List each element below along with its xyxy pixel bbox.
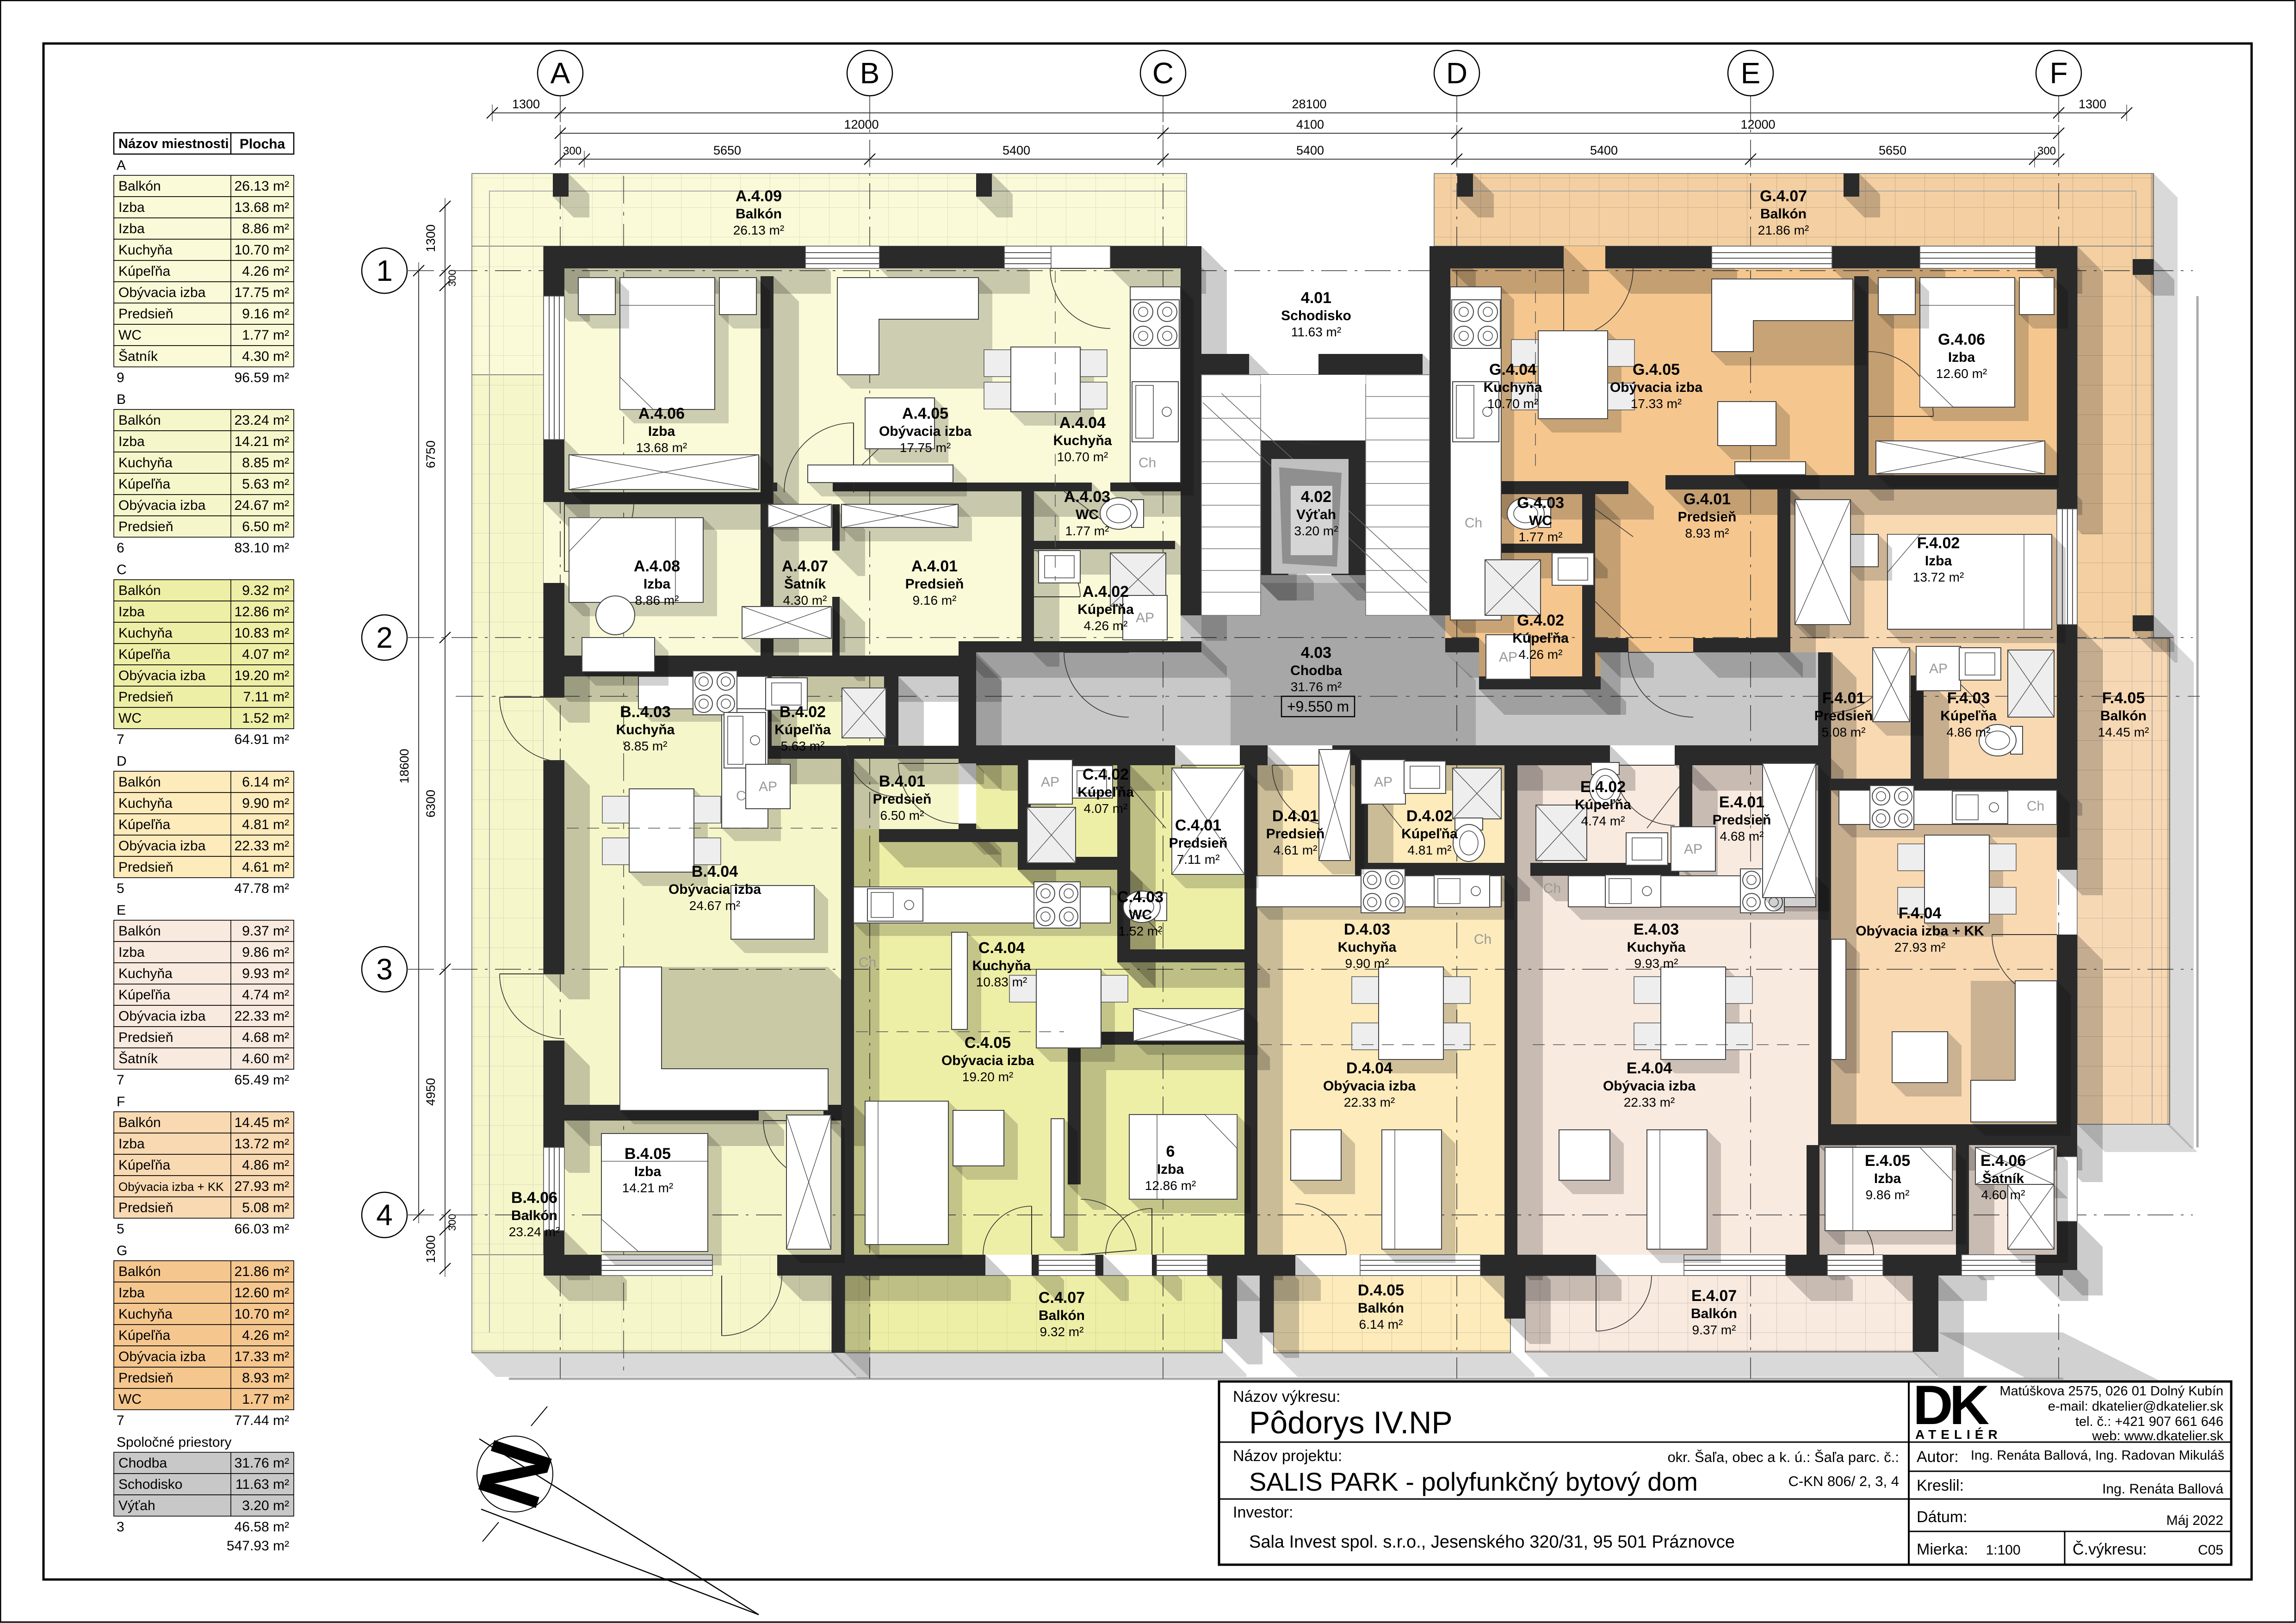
svg-text:3: 3: [376, 953, 393, 986]
svg-text:4.74 m²: 4.74 m²: [1581, 814, 1625, 828]
svg-text:Obývacia izba + KK: Obývacia izba + KK: [118, 1180, 224, 1194]
svg-text:A: A: [117, 158, 126, 173]
svg-text:300: 300: [563, 145, 582, 157]
svg-text:E: E: [1741, 56, 1761, 90]
svg-text:AP: AP: [1374, 774, 1392, 790]
svg-text:Obývacia izba: Obývacia izba: [118, 498, 206, 513]
svg-text:Šatník: Šatník: [118, 348, 158, 364]
svg-text:4.86 m²: 4.86 m²: [242, 1158, 289, 1173]
svg-text:B..4.03: B..4.03: [620, 703, 671, 721]
svg-text:Izba: Izba: [118, 1285, 145, 1301]
svg-text:A.4.01: A.4.01: [911, 558, 958, 575]
svg-text:B.4.04: B.4.04: [692, 863, 738, 880]
svg-text:Obývacia izba: Obývacia izba: [1323, 1078, 1416, 1094]
svg-text:547.93 m²: 547.93 m²: [227, 1538, 289, 1554]
svg-text:AP: AP: [1136, 610, 1154, 626]
svg-text:4.74 m²: 4.74 m²: [242, 987, 289, 1003]
svg-text:4.81 m²: 4.81 m²: [1408, 843, 1452, 857]
svg-text:10.70 m²: 10.70 m²: [235, 1307, 289, 1322]
svg-text:9.86 m²: 9.86 m²: [1866, 1188, 1910, 1202]
svg-text:1.77 m²: 1.77 m²: [242, 1392, 289, 1407]
svg-text:8.85 m²: 8.85 m²: [624, 739, 668, 753]
svg-text:Balkón: Balkón: [1039, 1308, 1085, 1323]
svg-text:tel. č.: +421 907 661 646: tel. č.: +421 907 661 646: [2075, 1414, 2223, 1429]
svg-text:9.32 m²: 9.32 m²: [1040, 1325, 1084, 1339]
svg-text:DK: DK: [1913, 1374, 1989, 1436]
svg-text:A.4.04: A.4.04: [1059, 414, 1106, 432]
svg-text:6.14 m²: 6.14 m²: [242, 774, 289, 790]
svg-text:E.4.01: E.4.01: [1719, 793, 1764, 811]
svg-text:4950: 4950: [424, 1078, 438, 1106]
svg-text:Kúpeľňa: Kúpeľňa: [118, 477, 170, 492]
svg-text:12.60 m²: 12.60 m²: [235, 1285, 289, 1301]
svg-text:14.21 m²: 14.21 m²: [235, 434, 289, 449]
svg-text:66.03 m²: 66.03 m²: [235, 1221, 289, 1237]
svg-text:14.45 m²: 14.45 m²: [235, 1115, 289, 1130]
svg-text:13.72 m²: 13.72 m²: [235, 1136, 289, 1152]
svg-text:Kúpeľňa: Kúpeľňa: [1077, 602, 1134, 617]
svg-text:Ch: Ch: [1139, 455, 1156, 471]
svg-text:4.68 m²: 4.68 m²: [1720, 829, 1764, 843]
svg-text:19.20 m²: 19.20 m²: [962, 1070, 1014, 1084]
svg-text:Balkón: Balkón: [118, 413, 161, 428]
svg-text:19.20 m²: 19.20 m²: [235, 668, 289, 683]
svg-text:F.4.05: F.4.05: [2102, 689, 2145, 707]
svg-text:Kúpeľňa: Kúpeľňa: [1401, 826, 1458, 842]
svg-text:1300: 1300: [512, 97, 540, 111]
svg-text:Ing. Renáta Ballová: Ing. Renáta Ballová: [2102, 1481, 2223, 1497]
svg-text:Šatník: Šatník: [118, 1051, 158, 1066]
svg-text:Kúpeľňa: Kúpeľňa: [1512, 631, 1569, 646]
svg-text:4.86 m²: 4.86 m²: [1947, 725, 1991, 739]
svg-text:F: F: [2049, 56, 2067, 90]
svg-text:Predsieň: Predsieň: [905, 576, 964, 592]
svg-text:300: 300: [2037, 145, 2056, 157]
svg-text:E.4.05: E.4.05: [1865, 1152, 1910, 1170]
svg-text:D.4.05: D.4.05: [1358, 1282, 1404, 1299]
svg-text:Výťah: Výťah: [1296, 507, 1336, 522]
svg-text:9.16 m²: 9.16 m²: [242, 306, 289, 322]
svg-text:SALIS PARK - polyfunkčný bytov: SALIS PARK - polyfunkčný bytový dom: [1249, 1467, 1698, 1496]
svg-text:Kuchyňa: Kuchyňa: [616, 722, 675, 737]
svg-text:13.68 m²: 13.68 m²: [235, 200, 289, 215]
svg-text:Kúpeľňa: Kúpeľňa: [1077, 785, 1134, 800]
svg-text:21.86 m²: 21.86 m²: [1758, 223, 1809, 237]
svg-text:Predsieň: Predsieň: [118, 860, 173, 875]
svg-text:F: F: [117, 1094, 125, 1109]
svg-text:8.86 m²: 8.86 m²: [635, 593, 679, 607]
svg-text:Izba: Izba: [118, 200, 145, 215]
svg-text:Kuchyňa: Kuchyňa: [972, 958, 1031, 973]
svg-text:Obývacia izba + KK: Obývacia izba + KK: [1856, 923, 1984, 939]
svg-text:Predsieň: Predsieň: [1713, 812, 1771, 828]
svg-text:Schodisko: Schodisko: [1281, 308, 1351, 323]
svg-text:5.08 m²: 5.08 m²: [242, 1200, 289, 1215]
svg-text:4.03: 4.03: [1301, 644, 1331, 662]
svg-text:AP: AP: [1929, 661, 1948, 676]
svg-text:21.86 m²: 21.86 m²: [235, 1264, 289, 1279]
svg-text:12.86 m²: 12.86 m²: [235, 604, 289, 619]
svg-text:Obývacia izba: Obývacia izba: [1610, 380, 1702, 395]
svg-text:B: B: [117, 392, 126, 407]
svg-text:23.24 m²: 23.24 m²: [235, 413, 289, 428]
svg-text:3.20 m²: 3.20 m²: [1294, 524, 1338, 538]
svg-text:G.4.01: G.4.01: [1683, 490, 1731, 508]
svg-text:Ch: Ch: [1543, 881, 1561, 896]
svg-text:Kuchyňa: Kuchyňa: [1053, 433, 1112, 448]
svg-text:G: G: [117, 1243, 127, 1258]
svg-text:Balkón: Balkón: [1358, 1301, 1404, 1316]
svg-text:Izba: Izba: [118, 434, 145, 449]
svg-text:Balkón: Balkón: [118, 774, 161, 790]
svg-text:65.49 m²: 65.49 m²: [235, 1072, 289, 1088]
svg-text:7: 7: [117, 1072, 124, 1088]
svg-text:ATELIÉR: ATELIÉR: [1915, 1427, 2002, 1442]
svg-text:Kuchyňa: Kuchyňa: [118, 966, 173, 981]
svg-text:C.4.04: C.4.04: [978, 939, 1025, 957]
svg-text:Plocha: Plocha: [240, 136, 285, 152]
svg-text:1.77 m²: 1.77 m²: [1519, 530, 1563, 544]
svg-text:4.68 m²: 4.68 m²: [242, 1030, 289, 1045]
svg-text:Máj 2022: Máj 2022: [2166, 1513, 2223, 1528]
svg-text:D.4.01: D.4.01: [1272, 807, 1318, 825]
svg-text:5400: 5400: [1296, 143, 1324, 157]
svg-text:1300: 1300: [424, 224, 438, 252]
svg-text:Chodba: Chodba: [1290, 663, 1342, 678]
svg-text:3: 3: [117, 1519, 124, 1535]
svg-text:Kúpeľňa: Kúpeľňa: [774, 722, 831, 737]
svg-text:9.37 m²: 9.37 m²: [1692, 1323, 1736, 1337]
svg-text:web: www.dkatelier.sk: web: www.dkatelier.sk: [2092, 1429, 2223, 1443]
svg-text:Ch: Ch: [2027, 799, 2044, 814]
svg-text:B.4.06: B.4.06: [511, 1189, 557, 1207]
svg-text:B.4.02: B.4.02: [780, 703, 826, 721]
svg-text:Ing. Renáta Ballová, Ing. Rado: Ing. Renáta Ballová, Ing. Radovan Mikulá…: [1971, 1448, 2224, 1463]
svg-text:1300: 1300: [424, 1235, 438, 1263]
svg-text:Dátum:: Dátum:: [1917, 1508, 1968, 1526]
svg-text:Kuchyňa: Kuchyňa: [1338, 940, 1397, 955]
svg-text:9.90 m²: 9.90 m²: [1345, 956, 1389, 971]
svg-text:Kreslil:: Kreslil:: [1917, 1477, 1964, 1494]
svg-text:Balkón: Balkón: [1691, 1306, 1737, 1321]
svg-text:C.4.07: C.4.07: [1039, 1289, 1085, 1307]
svg-text:F.4.02: F.4.02: [1917, 534, 1960, 552]
svg-text:Šatník: Šatník: [1982, 1171, 2024, 1186]
svg-text:17.33 m²: 17.33 m²: [1631, 396, 1682, 411]
svg-text:Č.výkresu:: Č.výkresu:: [2073, 1541, 2147, 1558]
svg-text:Kuchyňa: Kuchyňa: [118, 626, 173, 641]
svg-text:WC: WC: [1129, 907, 1152, 923]
svg-text:1.52 m²: 1.52 m²: [242, 711, 289, 726]
svg-text:5400: 5400: [1003, 143, 1030, 157]
svg-text:WC: WC: [1529, 513, 1552, 528]
svg-text:A.4.07: A.4.07: [782, 558, 828, 575]
svg-text:Kuchyňa: Kuchyňa: [118, 242, 173, 258]
svg-text:31.76 m²: 31.76 m²: [235, 1456, 289, 1471]
svg-text:E.4.04: E.4.04: [1627, 1059, 1672, 1077]
svg-text:D.4.02: D.4.02: [1406, 807, 1453, 825]
svg-text:A.4.09: A.4.09: [736, 187, 782, 205]
svg-text:G.4.06: G.4.06: [1938, 331, 1985, 348]
svg-text:24.67 m²: 24.67 m²: [689, 898, 741, 913]
svg-text:4.26 m²: 4.26 m²: [242, 264, 289, 279]
svg-text:A.4.08: A.4.08: [634, 558, 680, 575]
svg-text:C.4.01: C.4.01: [1175, 817, 1221, 834]
svg-text:4.30 m²: 4.30 m²: [242, 349, 289, 364]
svg-text:F.4.04: F.4.04: [1899, 904, 1942, 922]
svg-text:13.72 m²: 13.72 m²: [1913, 570, 1964, 584]
svg-text:Balkón: Balkón: [736, 206, 782, 222]
svg-text:A.4.05: A.4.05: [902, 405, 948, 422]
svg-text:7: 7: [117, 732, 124, 747]
svg-text:300: 300: [446, 270, 458, 287]
svg-text:Izba: Izba: [118, 1136, 145, 1152]
svg-text:8.93 m²: 8.93 m²: [1685, 526, 1729, 540]
svg-text:Kúpeľňa: Kúpeľňa: [118, 1328, 170, 1343]
svg-text:1.77 m²: 1.77 m²: [242, 328, 289, 343]
svg-text:9.32 m²: 9.32 m²: [242, 583, 289, 598]
svg-text:9.16 m²: 9.16 m²: [913, 593, 957, 607]
svg-text:1: 1: [376, 254, 393, 287]
svg-text:Názov projektu:: Názov projektu:: [1233, 1447, 1342, 1465]
svg-text:10.70 m²: 10.70 m²: [235, 242, 289, 258]
svg-text:9.93 m²: 9.93 m²: [1634, 956, 1678, 971]
svg-text:E.4.03: E.4.03: [1634, 921, 1679, 938]
svg-text:4.61 m²: 4.61 m²: [242, 860, 289, 875]
svg-text:2: 2: [376, 621, 393, 654]
svg-text:10.70 m²: 10.70 m²: [1057, 450, 1108, 464]
svg-text:17.75 m²: 17.75 m²: [235, 285, 289, 300]
svg-text:4.26 m²: 4.26 m²: [1519, 647, 1563, 662]
svg-text:Pôdorys IV.NP: Pôdorys IV.NP: [1249, 1405, 1453, 1440]
svg-text:10.83 m²: 10.83 m²: [976, 975, 1027, 989]
svg-text:E: E: [117, 903, 126, 918]
svg-text:Obývacia izba: Obývacia izba: [879, 424, 972, 439]
svg-text:22.33 m²: 22.33 m²: [235, 1009, 289, 1024]
svg-text:Obývacia izba: Obývacia izba: [941, 1053, 1034, 1068]
svg-text:64.91 m²: 64.91 m²: [235, 732, 289, 747]
svg-text:14.45 m²: 14.45 m²: [2098, 725, 2149, 739]
svg-text:47.78 m²: 47.78 m²: [235, 881, 289, 896]
svg-text:11.63 m²: 11.63 m²: [1291, 325, 1341, 339]
svg-text:6.50 m²: 6.50 m²: [880, 808, 924, 823]
svg-text:17.75 m²: 17.75 m²: [900, 440, 951, 455]
svg-text:5650: 5650: [1879, 143, 1906, 157]
svg-text:23.24 m²: 23.24 m²: [509, 1225, 560, 1239]
svg-text:AP: AP: [1041, 774, 1059, 790]
svg-text:A: A: [551, 56, 570, 90]
svg-text:Schodisko: Schodisko: [118, 1477, 182, 1492]
svg-text:Izba: Izba: [648, 424, 675, 439]
svg-text:Chodba: Chodba: [118, 1456, 167, 1471]
svg-text:12.86 m²: 12.86 m²: [1145, 1178, 1196, 1193]
svg-text:4.01: 4.01: [1301, 289, 1331, 307]
svg-text:Balkón: Balkón: [118, 179, 161, 194]
svg-text:Izba: Izba: [118, 604, 145, 619]
svg-text:A.4.06: A.4.06: [638, 405, 685, 422]
svg-text:4100: 4100: [1296, 118, 1324, 131]
svg-text:AP: AP: [1684, 842, 1702, 857]
svg-text:Kuchyňa: Kuchyňa: [118, 1307, 173, 1322]
svg-text:Názov výkresu:: Názov výkresu:: [1233, 1388, 1340, 1406]
svg-text:4.07 m²: 4.07 m²: [1084, 801, 1128, 816]
svg-text:4: 4: [376, 1198, 393, 1232]
svg-text:Izba: Izba: [118, 221, 145, 236]
svg-text:9.37 m²: 9.37 m²: [242, 923, 289, 939]
svg-text:4.26 m²: 4.26 m²: [242, 1328, 289, 1343]
svg-text:Kúpeľňa: Kúpeľňa: [118, 1158, 170, 1173]
svg-text:C.4.03: C.4.03: [1117, 888, 1163, 906]
svg-text:5: 5: [117, 1221, 124, 1237]
svg-text:Balkón: Balkón: [511, 1208, 557, 1223]
svg-text:Kuchyňa: Kuchyňa: [118, 455, 173, 471]
svg-text:Balkón: Balkón: [2100, 708, 2147, 724]
svg-text:Kúpeľňa: Kúpeľňa: [118, 647, 170, 662]
svg-text:4.61 m²: 4.61 m²: [1274, 843, 1318, 857]
svg-text:22.33 m²: 22.33 m²: [1624, 1095, 1675, 1109]
svg-text:Predsieň: Predsieň: [118, 689, 173, 705]
svg-text:Kúpeľňa: Kúpeľňa: [118, 264, 170, 279]
svg-text:D.4.03: D.4.03: [1344, 921, 1390, 938]
svg-text:4.26 m²: 4.26 m²: [1084, 619, 1128, 633]
svg-text:Kuchyňa: Kuchyňa: [118, 796, 173, 811]
svg-text:WC: WC: [1076, 507, 1099, 522]
svg-text:96.59 m²: 96.59 m²: [235, 370, 289, 385]
svg-text:27.93 m²: 27.93 m²: [1894, 940, 1946, 954]
svg-text:C-KN 806/ 2, 3, 4: C-KN 806/ 2, 3, 4: [1788, 1473, 1899, 1489]
svg-text:4.60 m²: 4.60 m²: [1981, 1188, 2025, 1202]
svg-text:Predsieň: Predsieň: [118, 306, 173, 322]
svg-text:8.85 m²: 8.85 m²: [242, 455, 289, 471]
svg-text:Ch: Ch: [1465, 515, 1482, 531]
svg-text:28100: 28100: [1292, 97, 1326, 111]
svg-text:Izba: Izba: [1157, 1162, 1184, 1177]
svg-text:4.81 m²: 4.81 m²: [242, 817, 289, 832]
svg-text:Izba: Izba: [1925, 553, 1952, 569]
svg-text:3.20 m²: 3.20 m²: [242, 1498, 289, 1513]
svg-text:8.86 m²: 8.86 m²: [242, 221, 289, 236]
svg-text:E.4.02: E.4.02: [1580, 778, 1626, 796]
svg-text:A.4.02: A.4.02: [1083, 583, 1129, 601]
svg-text:9.90 m²: 9.90 m²: [242, 796, 289, 811]
svg-text:Predsieň: Predsieň: [118, 1370, 173, 1386]
svg-text:Balkón: Balkón: [118, 583, 161, 598]
svg-text:Izba: Izba: [634, 1164, 662, 1179]
svg-text:26.13 m²: 26.13 m²: [733, 223, 785, 237]
svg-text:1.52 m²: 1.52 m²: [1119, 924, 1163, 938]
svg-text:WC: WC: [118, 328, 142, 343]
svg-text:9: 9: [117, 370, 124, 385]
svg-text:6.50 m²: 6.50 m²: [242, 519, 289, 534]
svg-text:AP: AP: [1499, 650, 1517, 665]
svg-text:22.33 m²: 22.33 m²: [235, 838, 289, 854]
svg-text:13.68 m²: 13.68 m²: [636, 440, 687, 455]
svg-text:7.11 m²: 7.11 m²: [243, 689, 289, 705]
svg-text:Autor:: Autor:: [1917, 1448, 1959, 1466]
svg-text:17.33 m²: 17.33 m²: [235, 1349, 289, 1364]
svg-text:4.02: 4.02: [1301, 488, 1331, 506]
svg-text:Kúpeľňa: Kúpeľňa: [118, 817, 170, 832]
svg-text:Kúpeľňa: Kúpeľňa: [1940, 708, 1997, 724]
svg-text:C.4.02: C.4.02: [1083, 766, 1129, 783]
svg-text:5400: 5400: [1590, 143, 1618, 157]
svg-text:22.33 m²: 22.33 m²: [1344, 1095, 1395, 1109]
svg-text:1.77 m²: 1.77 m²: [1065, 524, 1109, 538]
svg-text:Predsieň: Predsieň: [873, 792, 932, 807]
svg-text:12000: 12000: [1740, 118, 1775, 131]
svg-text:10.83 m²: 10.83 m²: [235, 626, 289, 641]
svg-text:Mierka:: Mierka:: [1917, 1541, 1968, 1558]
svg-text:Obývacia izba: Obývacia izba: [118, 1349, 206, 1364]
svg-text:9.93 m²: 9.93 m²: [242, 966, 289, 981]
svg-text:Balkón: Balkón: [118, 1115, 161, 1130]
svg-text:Predsieň: Predsieň: [1678, 509, 1737, 525]
svg-text:6: 6: [117, 540, 124, 556]
svg-text:4.07 m²: 4.07 m²: [242, 647, 289, 662]
svg-text:E.4.06: E.4.06: [1980, 1152, 2026, 1170]
svg-text:Kúpeľňa: Kúpeľňa: [118, 987, 170, 1003]
svg-text:Balkón: Balkón: [1760, 206, 1807, 222]
svg-text:Predsieň: Predsieň: [1814, 708, 1873, 724]
svg-text:12.60 m²: 12.60 m²: [1936, 366, 1987, 381]
svg-text:Predsieň: Predsieň: [118, 1030, 173, 1045]
svg-text:77.44 m²: 77.44 m²: [235, 1413, 289, 1428]
svg-text:26.13 m²: 26.13 m²: [235, 179, 289, 194]
svg-text:G.4.02: G.4.02: [1517, 612, 1564, 629]
svg-text:12000: 12000: [844, 118, 879, 131]
svg-text:1300: 1300: [2079, 97, 2106, 111]
svg-text:Obývacia izba: Obývacia izba: [1603, 1078, 1696, 1094]
svg-text:5650: 5650: [713, 143, 741, 157]
svg-text:46.58 m²: 46.58 m²: [235, 1519, 289, 1535]
svg-text:AP: AP: [759, 779, 777, 794]
svg-text:Predsieň: Predsieň: [1266, 826, 1325, 842]
svg-text:5.63 m²: 5.63 m²: [242, 477, 289, 492]
svg-text:8.93 m²: 8.93 m²: [242, 1370, 289, 1386]
svg-text:Ch: Ch: [1474, 932, 1491, 947]
svg-text:9.86 m²: 9.86 m²: [242, 945, 289, 960]
svg-text:11.63 m²: 11.63 m²: [235, 1477, 289, 1492]
svg-text:Spoločné priestory: Spoločné priestory: [117, 1435, 231, 1450]
svg-text:E.4.07: E.4.07: [1691, 1287, 1737, 1305]
svg-text:C05: C05: [2198, 1542, 2223, 1558]
svg-text:Názov miestnosti: Názov miestnosti: [118, 136, 229, 151]
svg-text:A.4.03: A.4.03: [1064, 488, 1110, 506]
svg-text:Ch: Ch: [859, 955, 876, 970]
svg-text:WC: WC: [118, 1392, 142, 1407]
svg-text:G.4.05: G.4.05: [1633, 361, 1680, 378]
svg-text:Kuchyňa: Kuchyňa: [1627, 940, 1686, 955]
svg-text:Obývacia izba: Obývacia izba: [118, 668, 206, 683]
svg-text:Predsieň: Predsieň: [118, 1200, 173, 1215]
svg-text:83.10 m²: 83.10 m²: [235, 540, 289, 556]
svg-text:B.4.05: B.4.05: [625, 1145, 671, 1163]
svg-text:G.4.07: G.4.07: [1760, 187, 1807, 205]
svg-text:e-mail: dkatelier@dkatelier.sk: e-mail: dkatelier@dkatelier.sk: [2048, 1399, 2224, 1414]
svg-text:18600: 18600: [397, 749, 411, 783]
svg-text:5.63 m²: 5.63 m²: [781, 739, 825, 753]
svg-text:F.4.03: F.4.03: [1947, 689, 1990, 707]
svg-text:C: C: [1152, 56, 1174, 90]
svg-text:Balkón: Balkón: [118, 1264, 161, 1279]
svg-text:F.4.01: F.4.01: [1822, 689, 1865, 707]
svg-text:14.21 m²: 14.21 m²: [622, 1181, 674, 1195]
svg-text:C.4.05: C.4.05: [965, 1034, 1011, 1052]
svg-text:6: 6: [1166, 1143, 1175, 1160]
svg-text:WC: WC: [118, 711, 142, 726]
svg-text:okr. Šaľa, obec a k. ú.: Šaľa: okr. Šaľa, obec a k. ú.: Šaľa parc. č.:: [1667, 1449, 1899, 1465]
svg-text:Predsieň: Predsieň: [1169, 836, 1228, 851]
